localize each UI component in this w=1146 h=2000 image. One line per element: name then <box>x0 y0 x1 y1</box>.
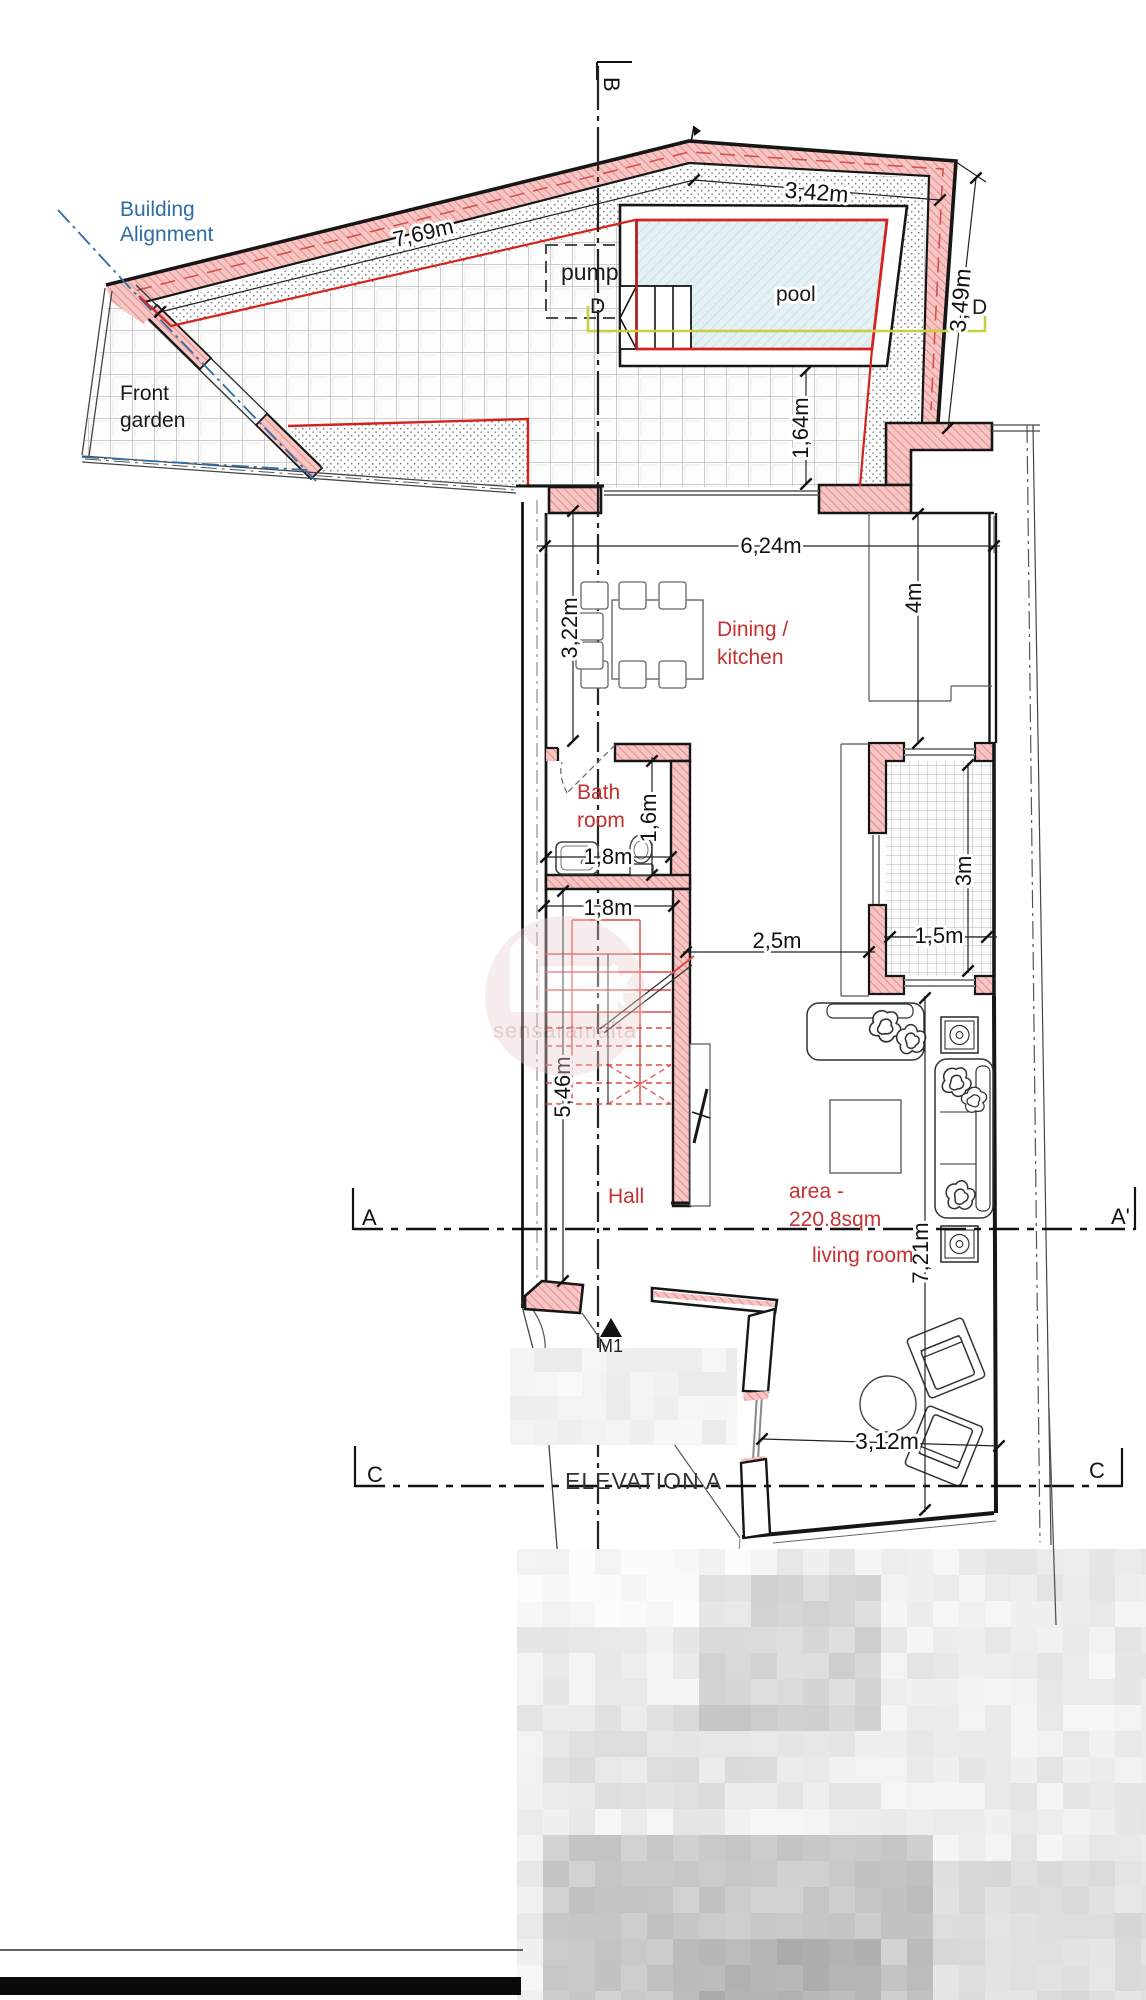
svg-text:Bath: Bath <box>577 781 620 804</box>
svg-text:M1: M1 <box>598 1336 623 1356</box>
svg-text:D: D <box>972 296 987 319</box>
svg-text:1,6m: 1,6m <box>636 794 661 843</box>
svg-text:room: room <box>577 809 625 832</box>
svg-text:B: B <box>599 77 624 92</box>
svg-text:1,64m: 1,64m <box>788 397 813 458</box>
svg-text:area -: area - <box>789 1180 844 1203</box>
svg-text:1,8m: 1,8m <box>584 895 633 920</box>
svg-text:Front: Front <box>120 382 169 405</box>
svg-text:3,42m: 3,42m <box>784 177 850 208</box>
svg-text:3m: 3m <box>951 856 976 887</box>
svg-text:A': A' <box>1111 1204 1130 1229</box>
svg-text:3,12m: 3,12m <box>855 1428 919 1454</box>
svg-text:2,5m: 2,5m <box>753 928 802 953</box>
svg-text:Alignment: Alignment <box>120 223 214 246</box>
svg-text:ELEVATION A: ELEVATION A <box>565 1468 722 1494</box>
svg-text:pump: pump <box>561 259 619 285</box>
svg-text:1,5m: 1,5m <box>915 923 964 948</box>
svg-text:3,22m: 3,22m <box>557 597 582 658</box>
svg-text:living room: living room <box>812 1244 914 1267</box>
svg-text:sensaramalta: sensaramalta <box>493 1018 637 1043</box>
svg-text:kitchen: kitchen <box>717 646 784 669</box>
svg-text:garden: garden <box>120 409 185 432</box>
svg-text:Hall: Hall <box>608 1185 644 1208</box>
svg-text:1,8m: 1,8m <box>584 844 633 869</box>
svg-text:220.8sqm: 220.8sqm <box>789 1208 881 1231</box>
svg-text:4m: 4m <box>901 583 926 614</box>
svg-text:Dining /: Dining / <box>717 618 788 641</box>
svg-text:Building: Building <box>120 198 195 221</box>
svg-text:A: A <box>362 1205 377 1230</box>
svg-text:C: C <box>1089 1458 1105 1483</box>
svg-text:6,24m: 6,24m <box>740 533 801 558</box>
svg-text:pool: pool <box>776 283 816 306</box>
svg-text:C: C <box>367 1462 383 1487</box>
